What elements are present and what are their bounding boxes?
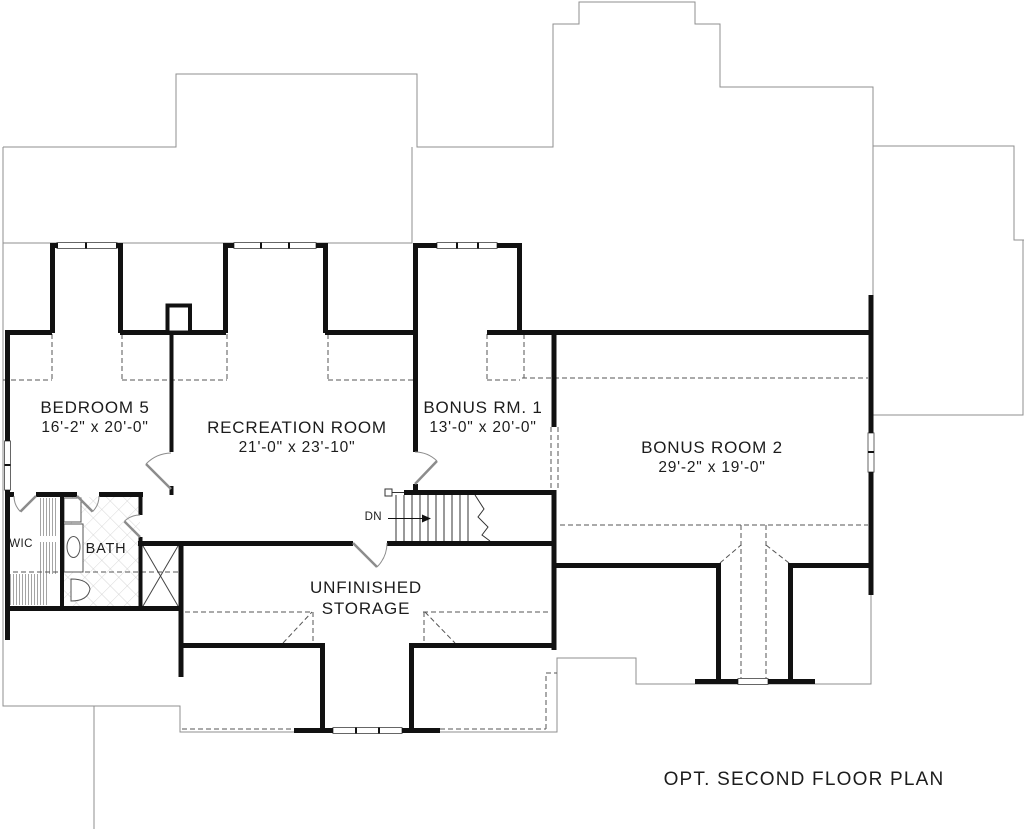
window-recreation bbox=[234, 243, 316, 249]
sink bbox=[67, 537, 80, 558]
window-storage-dormer bbox=[333, 728, 402, 734]
room-label-bonus1: BONUS RM. 1 bbox=[423, 398, 542, 418]
floor-plan-page: BEDROOM 5 16'-2" x 20'-0" RECREATION ROO… bbox=[0, 0, 1024, 829]
arrowhead-icon bbox=[422, 515, 431, 523]
door-storage bbox=[353, 543, 387, 567]
stairs-down-arrow bbox=[388, 515, 431, 523]
window-bonus1 bbox=[437, 243, 497, 249]
label-wic: WIC bbox=[9, 538, 33, 550]
room-dims-bedroom5: 16'-2" x 20'-0" bbox=[41, 419, 148, 437]
label-dn: DN bbox=[365, 511, 382, 523]
staircase bbox=[385, 489, 490, 541]
label-bath: BATH bbox=[86, 541, 127, 557]
room-label-storage-line2: STORAGE bbox=[322, 599, 410, 619]
windows bbox=[5, 243, 875, 734]
room-label-bonus2: BONUS ROOM 2 bbox=[641, 438, 783, 458]
window-chimney-bay bbox=[738, 679, 768, 685]
room-dims-recreation: 21'-0" x 23'-10" bbox=[239, 439, 356, 457]
linen-shelf bbox=[64, 498, 81, 522]
stair-newel bbox=[385, 489, 392, 496]
room-dims-bonus2: 29'-2" x 19'-0" bbox=[658, 459, 765, 477]
door-bonus1 bbox=[415, 452, 437, 484]
room-dims-bonus1: 13'-0" x 20'-0" bbox=[429, 419, 536, 437]
plan-title: OPT. SECOND FLOOR PLAN bbox=[664, 769, 945, 791]
chimney-box bbox=[168, 306, 191, 333]
wic-hanging-hatch bbox=[8, 498, 58, 605]
door-wic bbox=[14, 496, 36, 512]
door-bedroom5 bbox=[146, 453, 171, 489]
closet-x-box bbox=[143, 546, 178, 606]
room-label-recreation: RECREATION ROOM bbox=[207, 418, 387, 438]
room-label-bedroom5: BEDROOM 5 bbox=[40, 398, 149, 418]
room-label-storage-line1: UNFINISHED bbox=[310, 578, 422, 598]
